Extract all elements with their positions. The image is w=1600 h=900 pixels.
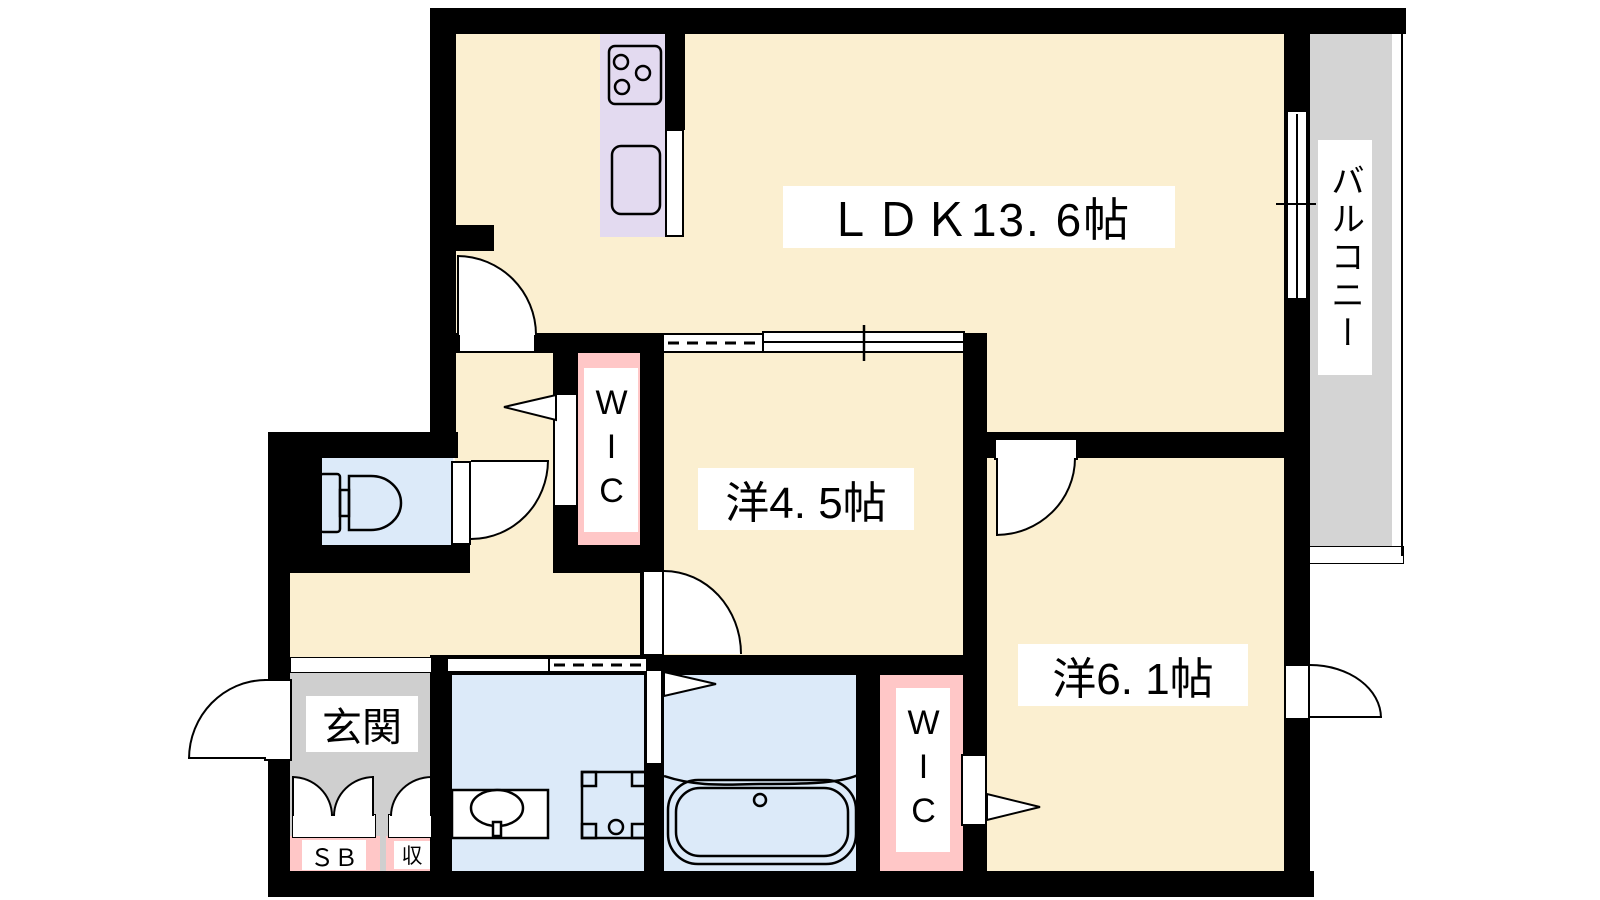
entrance-door-leaf (264, 679, 292, 761)
sliding-door-panels (762, 331, 965, 353)
wall-segment (430, 8, 1406, 34)
door-swing (1310, 664, 1382, 718)
wall-segment (268, 871, 1314, 897)
label-ldk: ＬＤＫ13. 6帖 (783, 186, 1175, 248)
bathroom-door-leaf (645, 669, 663, 765)
western-6-1-door-opening (994, 438, 1078, 460)
floor-plan: ＬＤＫ13. 6帖 洋4. 5帖 洋6. 1帖 バルコニー WIC WIC 玄関… (0, 0, 1600, 900)
label-wic-lower: WIC (896, 688, 950, 852)
hall-lower (290, 572, 455, 658)
label-entrance: 玄関 (306, 696, 418, 752)
wic-upper-door-leaf (553, 393, 578, 507)
wall-segment (430, 225, 494, 251)
label-shoe-box: ＳＢ (302, 840, 366, 870)
balcony-edge-strip (1308, 546, 1404, 564)
door-swing (188, 679, 266, 759)
label-western-4-5: 洋4. 5帖 (698, 468, 914, 530)
balcony-window (1286, 110, 1308, 300)
room-washroom (452, 672, 644, 871)
kitchen-counter (600, 34, 667, 237)
wall-segment (430, 8, 456, 438)
sliding-door-pocket (664, 333, 764, 353)
shoe-box-cabinet (292, 814, 376, 838)
wall-segment (856, 655, 880, 897)
label-western-6-1: 洋6. 1帖 (1018, 644, 1248, 706)
entrance-step-strip (290, 657, 432, 673)
wall-segment (430, 657, 452, 897)
room-bathroom (664, 672, 856, 871)
label-wic-upper: WIC (584, 368, 638, 532)
washroom-sliding-door (446, 657, 550, 673)
wall-segment (665, 8, 685, 130)
room-toilet (322, 458, 453, 545)
label-storage: 収 (394, 841, 430, 869)
toilet-door-leaf (451, 461, 471, 545)
storage-cabinet (388, 814, 432, 838)
wic-lower-door-leaf (961, 754, 987, 826)
western-6-1-exterior-door-leaf (1284, 664, 1310, 720)
wall-segment (268, 545, 470, 573)
western-4-5-door-leaf (642, 570, 664, 656)
wall-segment (553, 545, 664, 573)
label-balcony: バルコニー (1318, 140, 1372, 375)
washroom-sliding-pocket (550, 657, 646, 673)
